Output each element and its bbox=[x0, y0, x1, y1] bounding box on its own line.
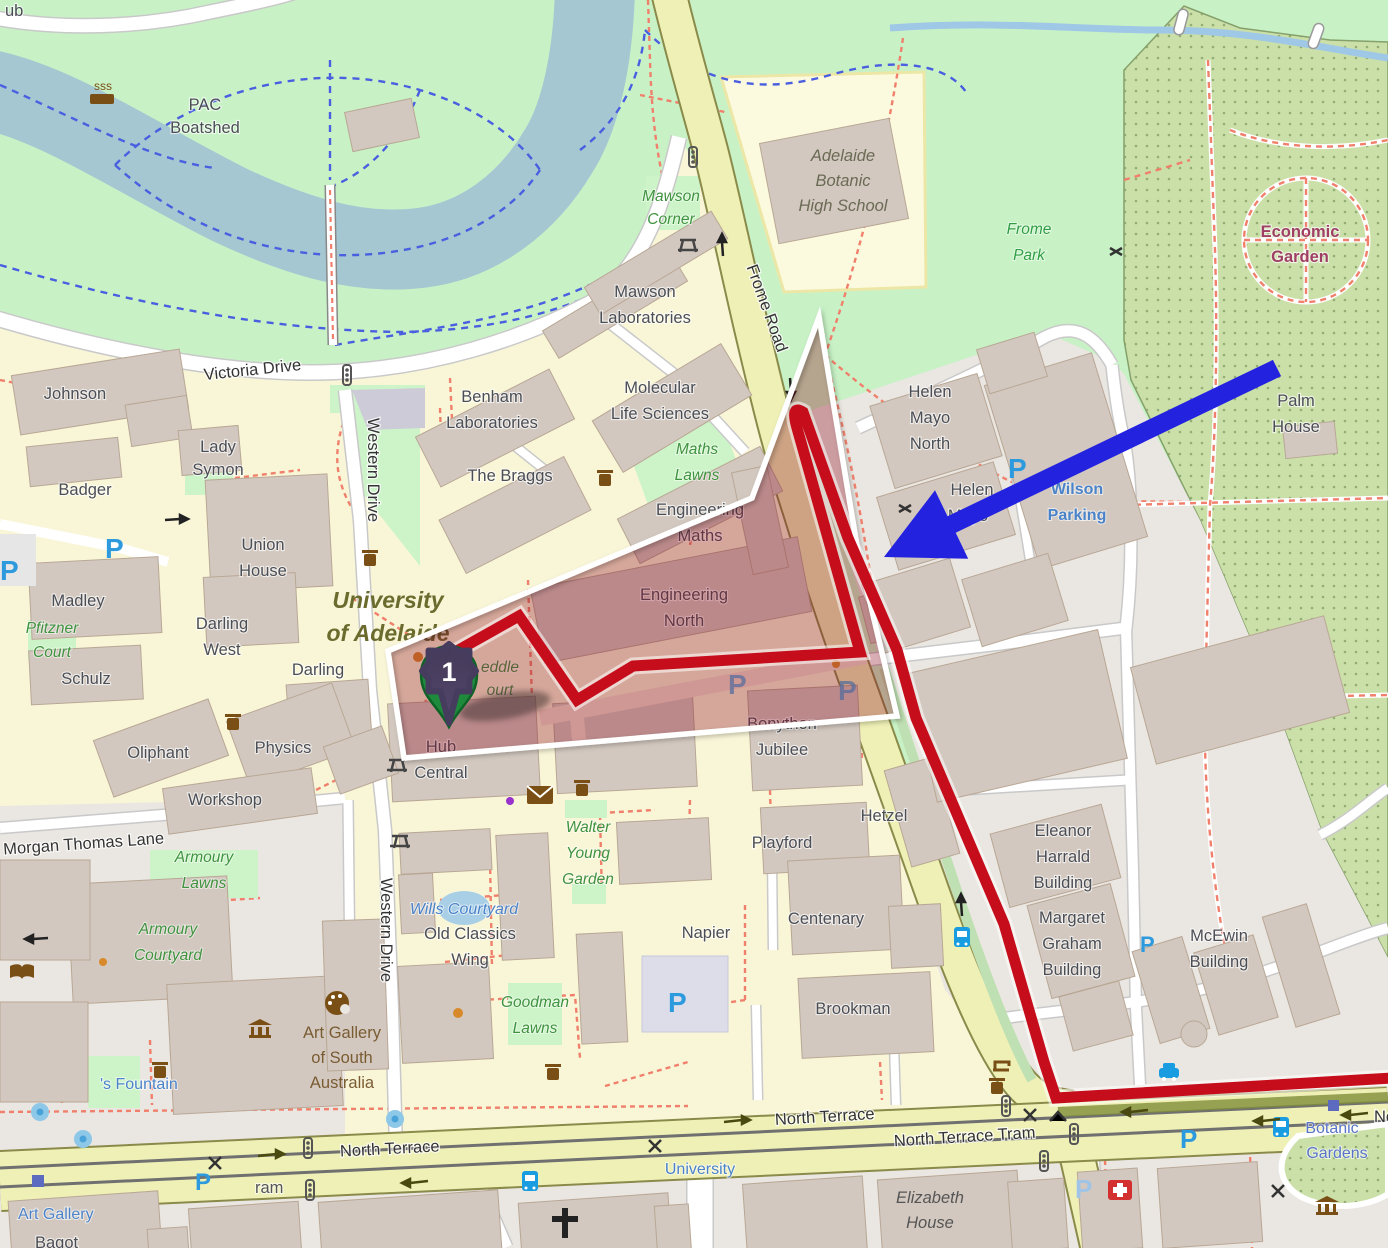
svg-text:Lawns: Lawns bbox=[675, 467, 720, 484]
svg-text:Botanic: Botanic bbox=[815, 172, 871, 190]
svg-text:Bagot: Bagot bbox=[35, 1234, 79, 1248]
svg-text:Darling: Darling bbox=[292, 661, 344, 679]
svg-text:High School: High School bbox=[799, 197, 889, 215]
svg-text:Garden: Garden bbox=[562, 871, 614, 888]
svg-text:Life Sciences: Life Sciences bbox=[611, 405, 709, 423]
svg-text:Playford: Playford bbox=[752, 834, 813, 852]
svg-text:Lawns: Lawns bbox=[513, 1020, 558, 1037]
svg-text:Oliphant: Oliphant bbox=[127, 744, 189, 762]
svg-text:Gardens: Gardens bbox=[1306, 1145, 1367, 1162]
svg-text:ub: ub bbox=[5, 2, 23, 20]
svg-text:Frome: Frome bbox=[1007, 221, 1052, 238]
svg-text:Old Classics: Old Classics bbox=[424, 925, 516, 943]
svg-text:North: North bbox=[910, 435, 950, 453]
svg-text:Walter: Walter bbox=[566, 819, 611, 836]
svg-text:Goodman: Goodman bbox=[501, 994, 569, 1011]
svg-text:West: West bbox=[203, 641, 241, 659]
svg-text:No: No bbox=[1374, 1108, 1388, 1126]
svg-text:Helen: Helen bbox=[908, 383, 951, 401]
svg-text:Badger: Badger bbox=[58, 481, 112, 499]
svg-text:P: P bbox=[1180, 1124, 1197, 1154]
svg-text:Harrald: Harrald bbox=[1036, 848, 1090, 866]
svg-text:Lawns: Lawns bbox=[182, 875, 227, 892]
svg-text:Wing: Wing bbox=[451, 951, 489, 969]
svg-text:Laboratories: Laboratories bbox=[446, 414, 538, 432]
svg-text:sss: sss bbox=[94, 79, 112, 93]
svg-text:ram: ram bbox=[255, 1179, 283, 1197]
svg-text:Building: Building bbox=[1034, 874, 1093, 892]
svg-text:The Braggs: The Braggs bbox=[467, 467, 552, 485]
svg-text:Johnson: Johnson bbox=[44, 385, 106, 403]
svg-text:Armoury: Armoury bbox=[174, 849, 235, 866]
svg-text:Economic: Economic bbox=[1261, 223, 1340, 241]
svg-text:P: P bbox=[105, 533, 124, 564]
svg-text:Darling: Darling bbox=[196, 615, 248, 633]
svg-text:House: House bbox=[239, 562, 287, 580]
svg-text:Art Gallery: Art Gallery bbox=[303, 1024, 382, 1042]
svg-text:Helen: Helen bbox=[950, 481, 993, 499]
svg-text:Jubilee: Jubilee bbox=[756, 741, 808, 759]
svg-text:Corner: Corner bbox=[647, 211, 695, 228]
svg-text:Parking: Parking bbox=[1048, 507, 1107, 524]
svg-text:Young: Young bbox=[566, 845, 610, 862]
svg-text:Union: Union bbox=[241, 536, 284, 554]
svg-text:Pfitzner: Pfitzner bbox=[26, 620, 79, 637]
svg-text:McEwin: McEwin bbox=[1190, 927, 1248, 945]
svg-text:Napier: Napier bbox=[682, 924, 731, 942]
svg-text:Schulz: Schulz bbox=[61, 670, 111, 688]
svg-text:Adelaide: Adelaide bbox=[810, 147, 875, 165]
svg-text:of South: of South bbox=[311, 1049, 372, 1067]
svg-text:Building: Building bbox=[1043, 961, 1102, 979]
svg-text:Palm: Palm bbox=[1277, 392, 1315, 410]
svg-text:Elizabeth: Elizabeth bbox=[896, 1189, 964, 1207]
svg-text:Brookman: Brookman bbox=[815, 1000, 890, 1018]
svg-text:Molecular: Molecular bbox=[624, 379, 696, 397]
svg-text:Eleanor: Eleanor bbox=[1035, 822, 1092, 840]
svg-text:Botanic: Botanic bbox=[1305, 1120, 1358, 1137]
svg-text:P: P bbox=[0, 555, 19, 586]
svg-text:Workshop: Workshop bbox=[188, 791, 262, 809]
svg-text:Art Gallery: Art Gallery bbox=[18, 1206, 94, 1223]
svg-text:Australia: Australia bbox=[310, 1074, 375, 1092]
svg-text:Laboratories: Laboratories bbox=[599, 309, 691, 327]
svg-text:Courtyard: Courtyard bbox=[134, 947, 203, 964]
svg-text:Physics: Physics bbox=[255, 739, 312, 757]
svg-text:University: University bbox=[665, 1161, 735, 1178]
svg-text:Park: Park bbox=[1013, 247, 1046, 264]
svg-text:Central: Central bbox=[414, 764, 467, 782]
svg-text:Wills Courtyard: Wills Courtyard bbox=[410, 901, 519, 918]
svg-text:House: House bbox=[906, 1214, 954, 1232]
svg-text:Graham: Graham bbox=[1042, 935, 1102, 953]
svg-text:Madley: Madley bbox=[51, 592, 105, 610]
svg-text:Court: Court bbox=[33, 644, 72, 661]
svg-text:Hetzel: Hetzel bbox=[861, 807, 908, 825]
svg-text:Mawson: Mawson bbox=[614, 283, 675, 301]
svg-text:Western Drive: Western Drive bbox=[377, 878, 395, 982]
svg-text:Margaret: Margaret bbox=[1039, 909, 1105, 927]
svg-text:PAC: PAC bbox=[189, 96, 222, 114]
svg-text:Wilson: Wilson bbox=[1051, 481, 1103, 498]
svg-text:P: P bbox=[1075, 1174, 1092, 1204]
svg-text:House: House bbox=[1272, 418, 1320, 436]
svg-text:Western Drive: Western Drive bbox=[364, 418, 382, 522]
svg-text:P: P bbox=[195, 1169, 211, 1196]
svg-text:Mayo: Mayo bbox=[910, 409, 950, 427]
svg-text:Building: Building bbox=[1190, 953, 1249, 971]
svg-text:P: P bbox=[1008, 453, 1027, 484]
svg-text:University: University bbox=[332, 587, 444, 613]
svg-text:1: 1 bbox=[441, 657, 456, 687]
svg-text:P: P bbox=[1140, 932, 1155, 957]
svg-text:Garden: Garden bbox=[1271, 248, 1329, 266]
svg-text:Lady: Lady bbox=[200, 438, 237, 456]
svg-text:P: P bbox=[668, 987, 687, 1018]
svg-text:Maths: Maths bbox=[676, 441, 718, 458]
svg-text:Centenary: Centenary bbox=[788, 910, 865, 928]
svg-text:Benham: Benham bbox=[461, 388, 522, 406]
svg-text:Symon: Symon bbox=[192, 461, 243, 479]
svg-text:Boatshed: Boatshed bbox=[170, 119, 240, 137]
svg-text:Armoury: Armoury bbox=[138, 921, 199, 938]
svg-text:Mawson: Mawson bbox=[642, 188, 700, 205]
svg-text:'s Fountain: 's Fountain bbox=[100, 1076, 178, 1093]
